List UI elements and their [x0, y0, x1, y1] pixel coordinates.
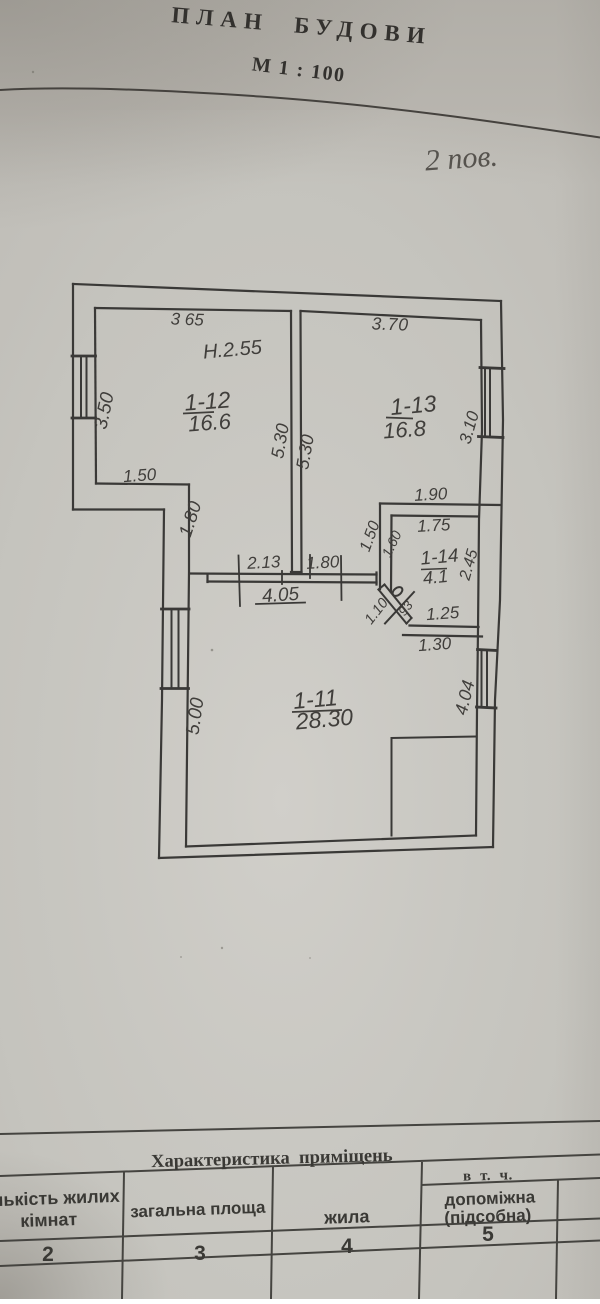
svg-text:4: 4 [341, 1235, 353, 1258]
svg-text:4.05: 4.05 [261, 584, 300, 608]
svg-text:1.25: 1.25 [425, 603, 460, 624]
svg-text:2: 2 [42, 1243, 54, 1266]
svg-text:3.70: 3.70 [371, 313, 409, 334]
svg-text:жила: жила [323, 1206, 371, 1228]
svg-text:5: 5 [482, 1223, 494, 1246]
svg-text:1.90: 1.90 [414, 484, 449, 505]
svg-text:3 65: 3 65 [170, 309, 204, 329]
svg-text:1.50: 1.50 [122, 465, 157, 486]
svg-text:2.13: 2.13 [246, 552, 282, 573]
svg-text:4.1: 4.1 [422, 566, 449, 588]
svg-text:в т. ч.: в т. ч. [463, 1167, 513, 1184]
svg-text:2 пов.: 2 пов. [424, 140, 499, 178]
svg-text:1.80: 1.80 [306, 552, 341, 573]
svg-text:16.6: 16.6 [187, 409, 232, 437]
svg-text:28.30: 28.30 [294, 704, 355, 735]
svg-text:16.8: 16.8 [382, 416, 427, 444]
svg-text:кімнат: кімнат [20, 1209, 78, 1231]
svg-text:1.30: 1.30 [417, 634, 452, 655]
svg-text:1.75: 1.75 [417, 515, 452, 536]
svg-text:3: 3 [194, 1242, 206, 1265]
